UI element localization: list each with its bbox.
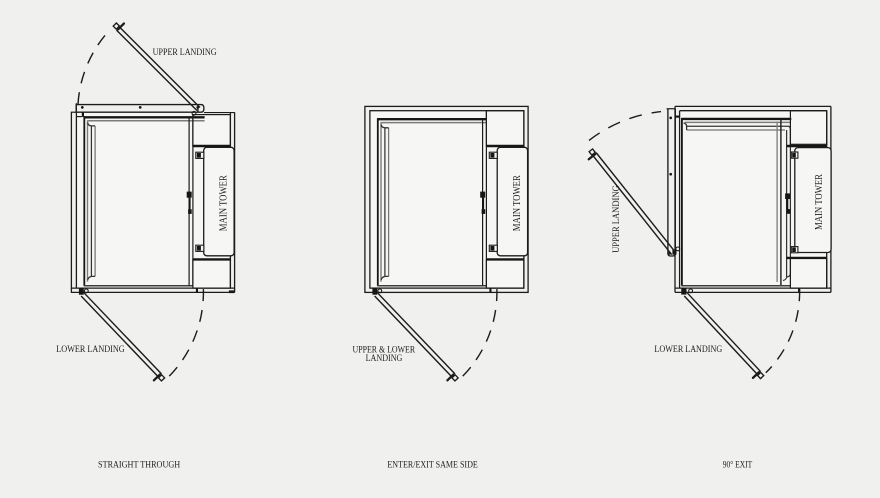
svg-text:ENTER/EXIT SAME SIDE: ENTER/EXIT SAME SIDE <box>387 460 478 470</box>
svg-text:MAIN TOWER: MAIN TOWER <box>814 174 825 230</box>
svg-text:MAIN TOWER: MAIN TOWER <box>219 175 230 231</box>
svg-text:90° EXIT: 90° EXIT <box>723 460 753 470</box>
svg-text:UPPER LANDING: UPPER LANDING <box>153 47 217 57</box>
svg-text:LOWER LANDING: LOWER LANDING <box>654 344 722 354</box>
svg-text:UPPER LANDING: UPPER LANDING <box>611 185 621 253</box>
svg-text:LANDING: LANDING <box>366 353 403 363</box>
svg-text:STRAIGHT THROUGH: STRAIGHT THROUGH <box>98 459 180 469</box>
svg-text:MAIN TOWER: MAIN TOWER <box>512 175 523 231</box>
svg-text:LOWER LANDING: LOWER LANDING <box>56 344 125 354</box>
